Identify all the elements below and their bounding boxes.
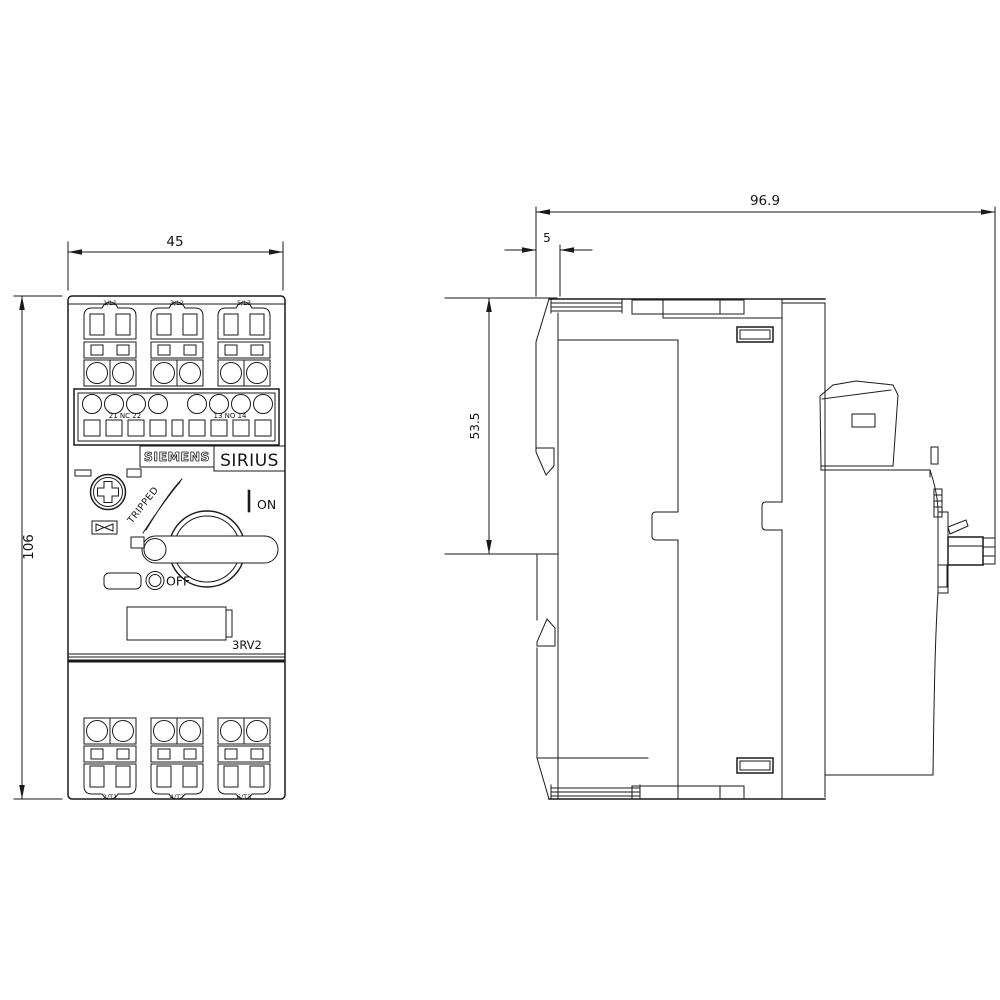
off-marker: OFF xyxy=(146,572,190,590)
off-label: OFF xyxy=(166,574,190,589)
terminal-label-top-3: 5/L3 xyxy=(237,299,251,307)
aux-terminal-block: 21 NC 22 13 NO 14 xyxy=(74,389,279,445)
marker-slot xyxy=(75,470,91,476)
dim-front-height: 106 xyxy=(14,296,62,799)
dim-front-width-label: 45 xyxy=(166,234,183,250)
dimension-drawing: 45 106 1/L1 xyxy=(0,0,1000,1000)
switch-section: TRIPPED ON OFF xyxy=(75,469,278,652)
brand-label: SIEMENS xyxy=(144,449,210,464)
dim-front-height-label: 106 xyxy=(21,534,37,560)
brand-plate: SIEMENS xyxy=(140,446,214,467)
dim-arrow-icon xyxy=(981,209,995,215)
device-label-field xyxy=(127,607,232,640)
front-view: 45 106 1/L1 xyxy=(14,234,285,801)
tripped-label: TRIPPED xyxy=(125,485,161,527)
vent-slot xyxy=(737,758,773,773)
dim-arrow-icon xyxy=(486,540,492,554)
reset-button xyxy=(104,573,141,589)
dim-depth-label: 96.9 xyxy=(750,193,780,209)
terminal-group-top-1: 1/L1 xyxy=(84,299,136,386)
on-marker: ON xyxy=(249,491,276,512)
terminal-label-top-1: 1/L1 xyxy=(103,299,117,307)
model-label: 3RV2 xyxy=(232,638,262,652)
side-view: 96.9 5 53.5 xyxy=(445,193,995,799)
cross-screw-icon xyxy=(98,482,119,503)
dim-arrow-icon xyxy=(536,209,550,215)
terminal-group-bottom-2: 4/T2 xyxy=(151,718,203,801)
terminal-label-top-2: 3/L2 xyxy=(170,299,184,307)
aux-label-right: 13 NO 14 xyxy=(213,412,247,420)
dim-depth: 96.9 xyxy=(536,193,995,560)
vent-slot xyxy=(737,327,773,342)
rotary-handle xyxy=(131,511,278,587)
separator-band xyxy=(68,654,285,663)
dim-din-offset-label: 5 xyxy=(543,231,551,245)
aux-label-left: 21 NC 22 xyxy=(109,412,141,420)
terminal-group-top-2: 3/L2 xyxy=(151,299,203,386)
dim-arrow-icon xyxy=(19,296,25,310)
dim-arrow-icon xyxy=(19,785,25,799)
dim-arrow-icon xyxy=(269,249,283,255)
dim-arrow-icon xyxy=(560,247,574,253)
dim-upper-height-label: 53.5 xyxy=(468,413,482,440)
terminal-label-bottom-1: 2/T1 xyxy=(103,793,117,801)
terminal-label-bottom-3: 6/T3 xyxy=(237,793,251,801)
current-adjust-dial xyxy=(91,475,126,510)
dim-arrow-icon xyxy=(486,298,492,312)
side-body xyxy=(536,299,995,799)
dim-front-width: 45 xyxy=(68,234,283,290)
dim-upper-height: 53.5 xyxy=(445,298,557,554)
series-plate: SIRIUS xyxy=(214,446,285,471)
test-button-icon xyxy=(92,521,117,534)
on-label: ON xyxy=(257,497,276,512)
accessory-flap xyxy=(820,381,898,466)
terminal-group-bottom-1: 2/T1 xyxy=(84,718,136,801)
dim-arrow-icon xyxy=(68,249,82,255)
rotary-knob-side xyxy=(931,447,995,593)
marker-slot xyxy=(127,469,141,477)
handle-pivot xyxy=(144,539,166,561)
dim-din-offset: 5 xyxy=(505,231,592,296)
din-rail-clamp-icon xyxy=(536,299,648,799)
terminal-label-bottom-2: 4/T2 xyxy=(170,793,184,801)
terminal-group-bottom-3: 6/T3 xyxy=(218,718,270,801)
dim-arrow-icon xyxy=(522,247,536,253)
series-label: SIRIUS xyxy=(220,451,279,471)
terminal-group-top-3: 5/L3 xyxy=(218,299,270,386)
